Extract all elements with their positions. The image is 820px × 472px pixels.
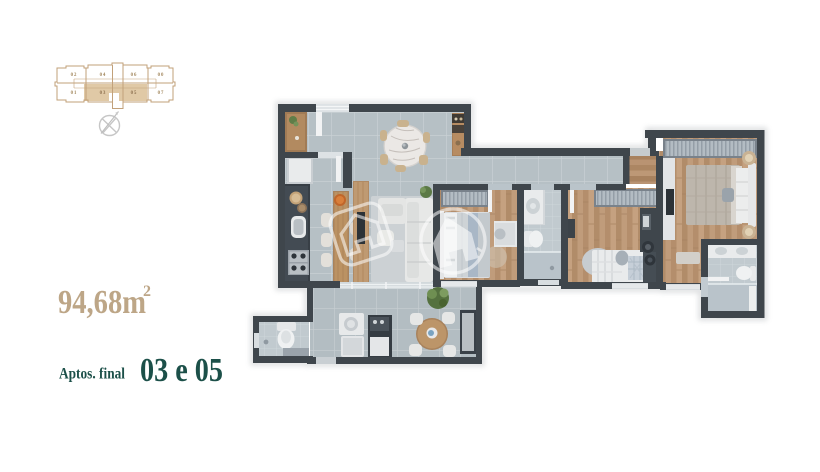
svg-text:07: 07 [158, 91, 165, 96]
svg-text:03: 03 [100, 91, 107, 96]
svg-text:06: 06 [131, 73, 138, 78]
svg-text:05: 05 [131, 91, 138, 96]
svg-text:01: 01 [71, 91, 78, 96]
svg-text:94,68m: 94,68m [58, 284, 146, 321]
svg-text:04: 04 [100, 73, 107, 78]
svg-text:00: 00 [158, 73, 165, 78]
svg-text:03 e 05: 03 e 05 [140, 352, 223, 389]
svg-text:02: 02 [71, 73, 78, 78]
svg-text:Aptos. final: Aptos. final [59, 366, 125, 383]
svg-text:2: 2 [143, 283, 151, 300]
